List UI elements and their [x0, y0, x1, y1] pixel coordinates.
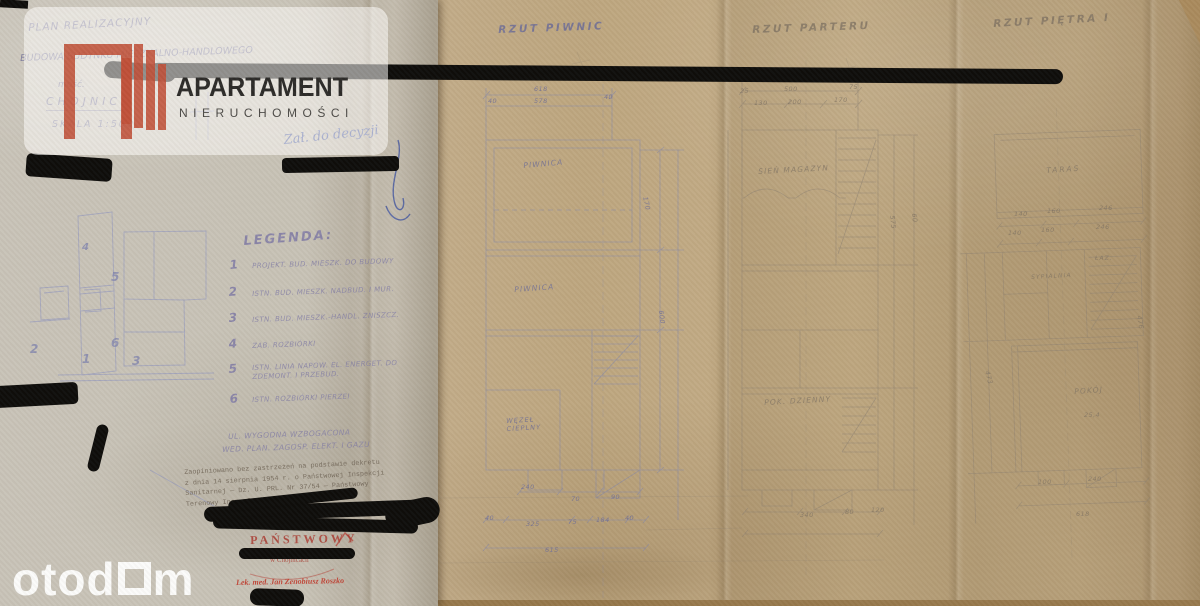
dim-label: 184 [596, 516, 610, 524]
site-parcel-label: 2 [30, 342, 38, 356]
dim-label: 246 [1099, 204, 1113, 212]
dim-label: 160 [1041, 226, 1055, 234]
dim-label: 140 [1008, 229, 1022, 237]
dim-label: 240 [521, 483, 535, 491]
dim-label: 25 [740, 87, 749, 95]
dim-label: 246 [1096, 223, 1110, 231]
dim-label: 75 [568, 518, 577, 526]
otodom-square-o-icon [118, 562, 151, 595]
dim-label: 600 [657, 310, 666, 324]
doctor-signature-text: Lek. med. Jan Zenobiusz Roszko [236, 576, 344, 587]
agency-name: APARTAMENT [176, 72, 348, 103]
ink-signature [386, 140, 410, 220]
site-parcel-label: 1 [82, 352, 90, 366]
room-label: WĘZEŁ CIEPLNY [506, 415, 549, 433]
dim-label: 340 [800, 511, 814, 519]
marker-redaction [0, 0, 28, 9]
site-parcel-label: 3 [132, 354, 140, 368]
ground-floor-plan-drawing [728, 60, 918, 580]
otodom-wordmark-part2: m [153, 553, 195, 605]
site-parcel-label: 6 [111, 336, 119, 350]
marker-redaction [0, 382, 79, 408]
dim-label: 575 [888, 215, 897, 229]
dim-label: 70 [571, 495, 580, 503]
state-stamp-text: PAŃSTWOWY [250, 531, 358, 548]
dim-label: 40 [485, 514, 494, 522]
legend-num: 4 [228, 336, 238, 351]
dim-label: 130 [754, 99, 768, 107]
dim-label: 40 [488, 97, 497, 105]
otodom-wordmark-part1: otod [12, 553, 116, 605]
dim-label: 325 [526, 520, 540, 528]
site-parcel-label: 4 [82, 242, 89, 253]
dim-label: 75 [849, 83, 858, 91]
marker-redaction [239, 548, 355, 559]
dim-label: 200 [788, 98, 802, 106]
dim-label: 618 [1076, 510, 1090, 518]
marker-redaction [250, 588, 305, 606]
dim-label: 240 [1088, 475, 1102, 483]
legend-num: 5 [228, 361, 238, 376]
dim-label: 170 [834, 96, 848, 104]
dim-label: 578 [534, 97, 548, 105]
scanned-blueprint-photo: PLAN REALIZACYJNY BUDOWA BUDYNKU MIESZKA… [0, 0, 1200, 606]
room-area-label: 25,4 [1084, 411, 1100, 419]
dim-label: 160 [1047, 207, 1061, 215]
dim-label: 500 [784, 85, 798, 93]
dim-label: 120 [871, 506, 885, 514]
agency-subtitle: NIERUCHOMOŚCI [179, 106, 354, 120]
dim-label: 60 [910, 213, 919, 223]
legend-num: 1 [229, 257, 239, 272]
otodom-watermark: otodm [12, 552, 195, 606]
dim-label: 140 [1014, 210, 1028, 218]
dim-label: 618 [534, 85, 548, 93]
room-label: ŁAZ. [1095, 255, 1113, 262]
site-parcel-label: 5 [111, 270, 119, 284]
dim-label: 100 [1038, 478, 1052, 486]
legend-num: 6 [229, 391, 239, 406]
construction-guides [440, 52, 884, 563]
marker-redaction [282, 156, 399, 173]
legend-num: 2 [228, 284, 238, 299]
legend-num: 3 [228, 310, 238, 325]
apartament-logo-icon [64, 38, 174, 138]
dim-label: 90 [611, 493, 620, 501]
basement-plan-drawing [483, 84, 684, 598]
dim-label: 40 [625, 514, 634, 522]
dim-label: 40 [604, 93, 613, 101]
dim-label: 615 [545, 546, 559, 554]
dim-label: 80 [845, 508, 854, 516]
